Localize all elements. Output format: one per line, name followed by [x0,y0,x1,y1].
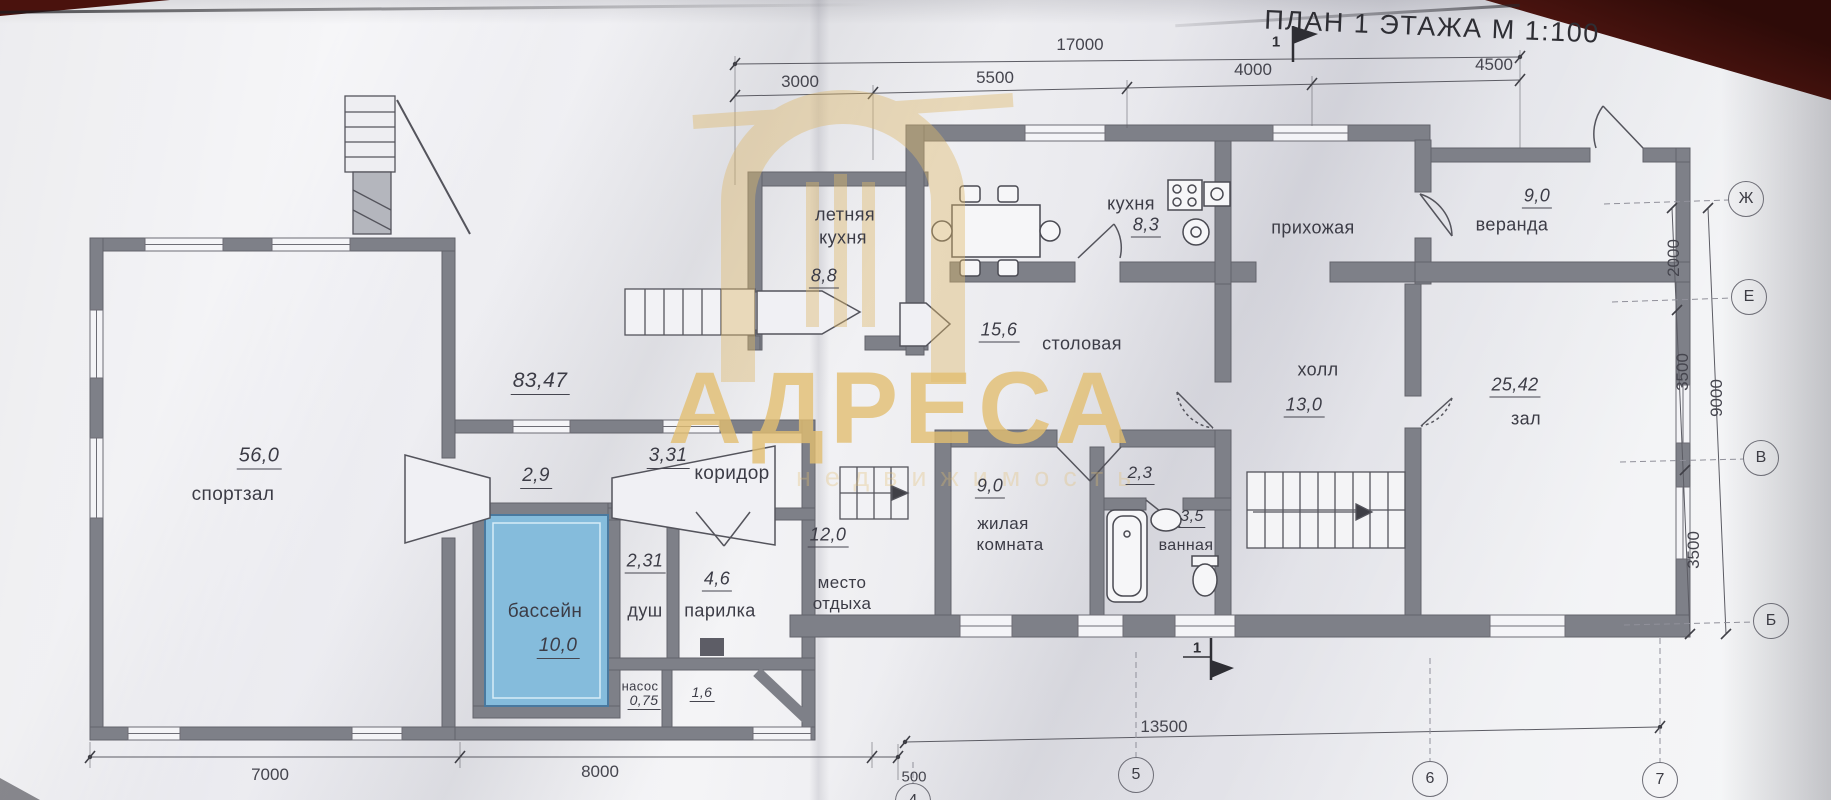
dim-right-3500b: 3500 [1684,531,1704,569]
room-name-sportzal: спортзал [192,484,275,506]
room-area-bassein: 10,0 [537,635,580,659]
room-name-kuhnya: кухня [1107,194,1155,215]
grid-axis-5: 5 [1118,757,1154,793]
room-name-zhilaya-2: комната [976,535,1043,555]
room-name-holl: холл [1297,360,1338,381]
section-flag-bottom [1183,638,1234,680]
room-area-zhilaya: 9,0 [975,476,1005,499]
room-area-sportzal: 56,0 [237,445,282,470]
dim-bottom-13500: 13500 [1140,717,1187,737]
grid-axis-zh: Ж [1728,181,1764,217]
room-name-veranda: веранда [1476,215,1549,236]
dim-bottom-7000: 7000 [251,765,289,785]
dining-table-icon [952,205,1040,257]
room-name-vannaya: ванная [1159,537,1214,555]
room-name-dush: душ [627,601,662,622]
room-name-letnyaya-2: кухня [819,228,867,249]
dim-right-3500a: 3500 [1673,353,1693,391]
grid-axis-e: Е [1731,279,1767,315]
room-name-mesto-1: место [818,573,867,593]
dim-right-2000: 2000 [1664,239,1684,277]
room-area-kuhnya: 8,3 [1131,215,1161,238]
room-area-parilka: 4,6 [702,569,732,592]
room-area-koridor: 3,31 [647,445,690,469]
room-area-mesto: 12,0 [808,525,849,548]
room-area-vannaya: 3,5 [1178,508,1205,528]
room-name-letnyaya-1: летняя [815,205,875,226]
grid-axis-b: Б [1753,603,1789,639]
room-area-vestibule: 2,9 [520,465,552,489]
room-name-zal: зал [1511,409,1541,430]
stairs [345,96,1405,548]
room-name-parilka: парилка [684,601,755,622]
room-area-hall-2-3: 2,3 [1126,463,1155,485]
grid-axis-7: 7 [1642,762,1678,798]
room-name-prihozhaya: прихожая [1271,218,1354,239]
grid-axis-6: 6 [1412,761,1448,797]
room-area-veranda: 9,0 [1522,186,1552,209]
dim-bottom-8000: 8000 [581,762,619,782]
dim-top-3000: 3000 [781,72,819,92]
dim-top-total: 17000 [1056,35,1103,55]
area-pool-house-total: 83,47 [511,369,570,395]
room-name-koridor: коридор [694,463,769,485]
section-mark-top: 1 [1272,34,1280,51]
room-area-stolovaya: 15,6 [979,320,1020,343]
floorplan-drawing [0,0,1831,800]
walls [90,125,1690,740]
dim-top-4500: 4500 [1475,55,1513,75]
windows [90,125,1690,740]
room-name-bassein: бассейн [508,601,583,623]
room-area-zal: 25,42 [1489,375,1540,398]
dim-top-4000: 4000 [1234,60,1272,80]
dim-right-9000: 9000 [1707,379,1727,417]
room-area-nasos: 0,75 [628,692,661,710]
room-area-holl: 13,0 [1284,395,1325,418]
room-name-stolovaya: столовая [1042,334,1122,355]
room-area-letnyaya: 8,8 [809,266,839,289]
room-area-dush: 2,31 [625,551,666,574]
grid-axis-v: В [1743,440,1779,476]
section-mark-bottom: 1 [1193,640,1201,657]
room-area-1-6: 1,6 [690,684,715,702]
room-name-mesto-2: отдыха [813,594,872,614]
floorplan-photo: АДРЕСА недвижимость ПЛАН 1 ЭТАЖА М 1:100… [0,0,1831,800]
stove-icon [1168,180,1202,210]
bath-sink-icon [1151,509,1181,531]
sauna-stove-icon [700,638,724,656]
dim-top-5500: 5500 [976,68,1014,88]
room-name-zhilaya-1: жилая [977,514,1028,534]
